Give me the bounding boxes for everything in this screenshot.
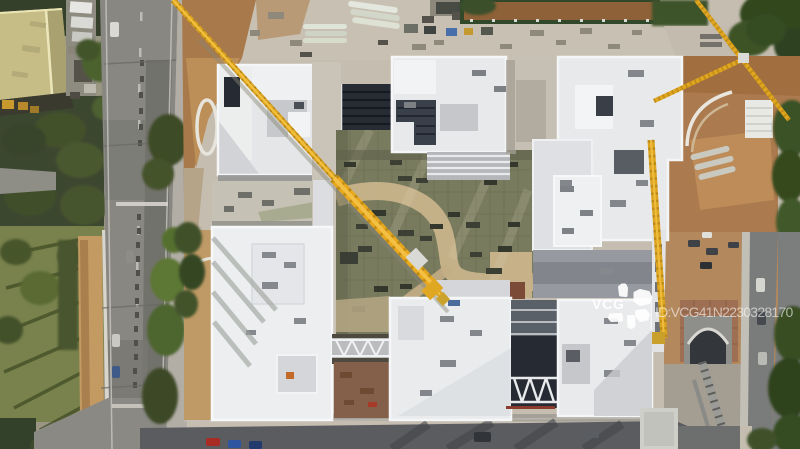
svg-text:VCG: VCG [592, 296, 625, 312]
svg-text:ID:VCG41N2230328170: ID:VCG41N2230328170 [655, 304, 793, 320]
